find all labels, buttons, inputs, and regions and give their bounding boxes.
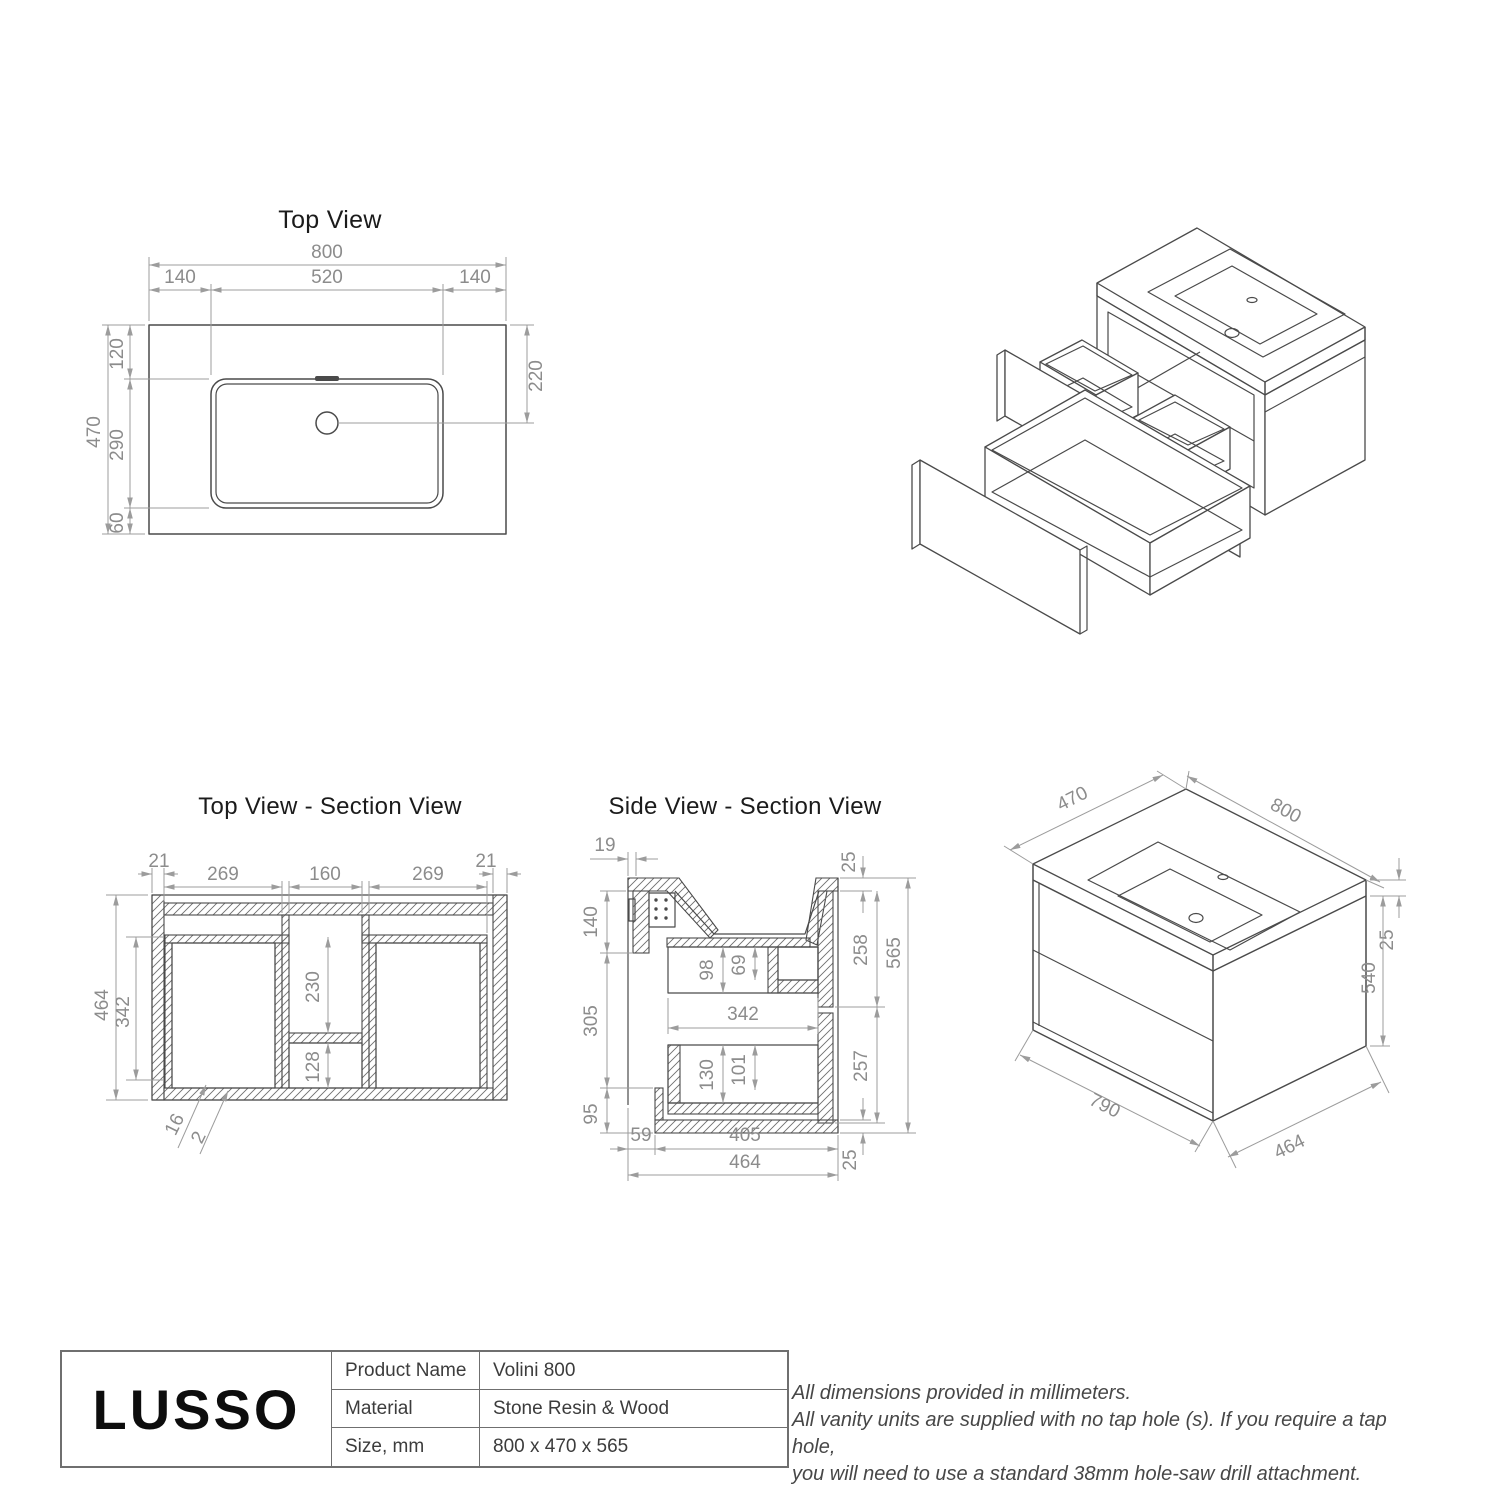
drawer-front-upper-section	[818, 891, 833, 1007]
dim-520: 520	[311, 267, 343, 288]
top-view-dimensions: 800 140 520 140 470 120 290 60 220	[84, 242, 547, 534]
dim-25-iso: 25	[1377, 929, 1398, 950]
dim-800: 800	[311, 242, 343, 263]
field-value-size: 800 x 470 x 565	[480, 1428, 787, 1466]
dim-2: 2	[187, 1128, 211, 1147]
dim-257: 257	[851, 1050, 872, 1082]
drain-hole	[316, 412, 338, 434]
dim-60: 60	[107, 512, 128, 533]
dim-130: 130	[697, 1059, 718, 1091]
dim-160: 160	[309, 864, 341, 885]
dim-230: 230	[303, 971, 324, 1003]
note-line-1: All dimensions provided in millimeters.	[792, 1380, 1392, 1407]
dim-25-bottom: 25	[840, 1149, 861, 1170]
dim-464-iso: 464	[1271, 1130, 1309, 1163]
dim-95: 95	[581, 1103, 602, 1124]
dim-140-left: 140	[164, 267, 196, 288]
dim-140: 140	[581, 906, 602, 938]
dim-305: 305	[581, 1005, 602, 1037]
field-label-size: Size, mm	[332, 1428, 480, 1466]
top-section-drawing: 21 21 269 160 269 464 342 230 128 16	[60, 780, 530, 1210]
dim-405: 405	[729, 1125, 761, 1146]
exploded-isometric-drawing	[880, 190, 1420, 650]
title-block: LUSSO Product Name Volini 800 Material S…	[60, 1350, 789, 1468]
field-label-material: Material	[332, 1390, 480, 1428]
dim-790-iso: 790	[1086, 1090, 1124, 1123]
dim-464: 464	[92, 989, 113, 1021]
note-line-3: you will need to use a standard 38mm hol…	[792, 1461, 1392, 1488]
field-value-material: Stone Resin & Wood	[480, 1390, 787, 1428]
field-label-product-name: Product Name	[332, 1352, 480, 1390]
section-walls	[152, 895, 507, 1100]
overflow-slot	[315, 376, 339, 381]
dim-258: 258	[851, 934, 872, 966]
dim-69: 69	[729, 954, 750, 975]
note-line-2: All vanity units are supplied with no ta…	[792, 1407, 1392, 1461]
dim-540-iso: 540	[1359, 962, 1380, 994]
cabinet-isometric	[1033, 789, 1366, 1121]
dim-98: 98	[697, 959, 718, 980]
dim-269-left: 269	[207, 864, 239, 885]
dim-25-top: 25	[839, 851, 860, 872]
notes: All dimensions provided in millimeters. …	[792, 1380, 1392, 1488]
dim-21-right: 21	[475, 851, 496, 872]
dim-140-right: 140	[459, 267, 491, 288]
dim-565: 565	[884, 937, 905, 969]
isometric-dimension-drawing: 470 800 25 540 790 464	[990, 770, 1430, 1200]
dim-290: 290	[107, 429, 128, 461]
dim-128: 128	[303, 1051, 324, 1083]
dim-19: 19	[594, 835, 615, 856]
dim-16: 16	[161, 1110, 189, 1138]
top-view-drawing: 800 140 520 140 470 120 290 60 220	[20, 195, 580, 565]
lusso-logo: LUSSO	[62, 1352, 332, 1466]
dim-101: 101	[729, 1054, 750, 1086]
dim-464-side: 464	[729, 1152, 761, 1173]
dim-220: 220	[526, 360, 547, 392]
dim-120: 120	[107, 338, 128, 370]
dim-342-side: 342	[727, 1004, 759, 1025]
top-view-outline	[149, 325, 506, 534]
field-value-product-name: Volini 800	[480, 1352, 787, 1390]
drawer-front-lower-section	[818, 1013, 833, 1123]
dim-21-left: 21	[148, 851, 169, 872]
dim-342: 342	[113, 996, 134, 1028]
dim-59: 59	[630, 1125, 651, 1146]
drawing-sheet: Top View Top View - Section View Side Vi…	[0, 0, 1500, 1500]
dim-269-right: 269	[412, 864, 444, 885]
dim-470: 470	[84, 416, 105, 448]
side-section-drawing: 19 25 140 305 95 98 69 258 257	[560, 780, 1020, 1210]
dim-470-iso: 470	[1054, 783, 1092, 816]
